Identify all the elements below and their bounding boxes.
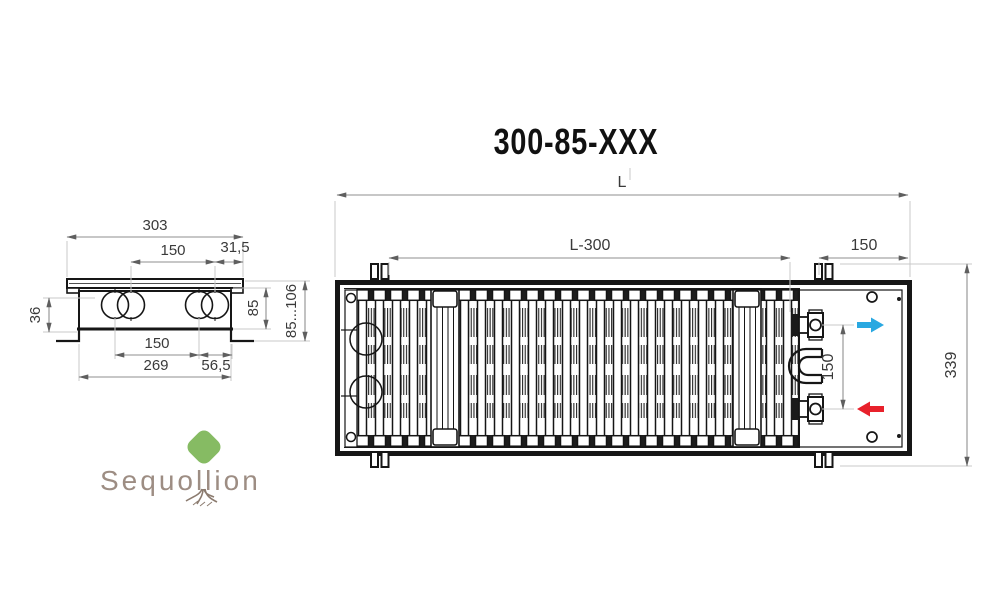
- dim-label-339: 339: [943, 352, 960, 379]
- grille-support: [431, 289, 459, 447]
- logo-text: Sequollion: [100, 465, 261, 496]
- plan-view: L L-300 150 339 150: [335, 174, 972, 467]
- rivet: [897, 434, 901, 438]
- dim-label-150-bottom: 150: [144, 335, 169, 352]
- right-flange: [231, 329, 254, 341]
- dim-label-269: 269: [143, 357, 168, 374]
- dim-label-56-5: 56,5: [201, 357, 230, 374]
- dim-label-150-top: 150: [160, 242, 185, 259]
- dim-label-85-106: 85...106: [283, 284, 300, 338]
- logo-tree-canopy: [184, 427, 224, 467]
- dim-label-L-300: L-300: [570, 237, 611, 254]
- supply-connection: [791, 310, 823, 340]
- brand-logo: Sequollion: [100, 427, 261, 506]
- dim-label-150-connections: 150: [820, 354, 837, 381]
- side-section-view: 303 150 31,5 36 85 85...106 150 56,5 269: [27, 217, 310, 381]
- drawing-page: 300-85-XXX 303: [0, 0, 1000, 600]
- screw-hole: [867, 292, 877, 302]
- left-end-column: [341, 289, 357, 447]
- dim-label-150-end: 150: [851, 237, 878, 254]
- technical-drawing: 300-85-XXX 303: [0, 0, 1000, 600]
- rivet: [897, 297, 901, 301]
- screw-hole: [867, 432, 877, 442]
- dim-label-36: 36: [27, 307, 44, 324]
- screw-hole: [347, 433, 356, 442]
- return-connection: [791, 394, 823, 424]
- dim-label-85: 85: [245, 300, 262, 317]
- screw-hole: [347, 294, 356, 303]
- dim-label-31-5: 31,5: [220, 239, 249, 256]
- dim-label-L: L: [618, 174, 627, 191]
- left-flange: [56, 329, 79, 341]
- dim-label-303: 303: [142, 217, 167, 234]
- drawing-title: 300-85-XXX: [494, 121, 659, 162]
- grille-support: [733, 289, 761, 447]
